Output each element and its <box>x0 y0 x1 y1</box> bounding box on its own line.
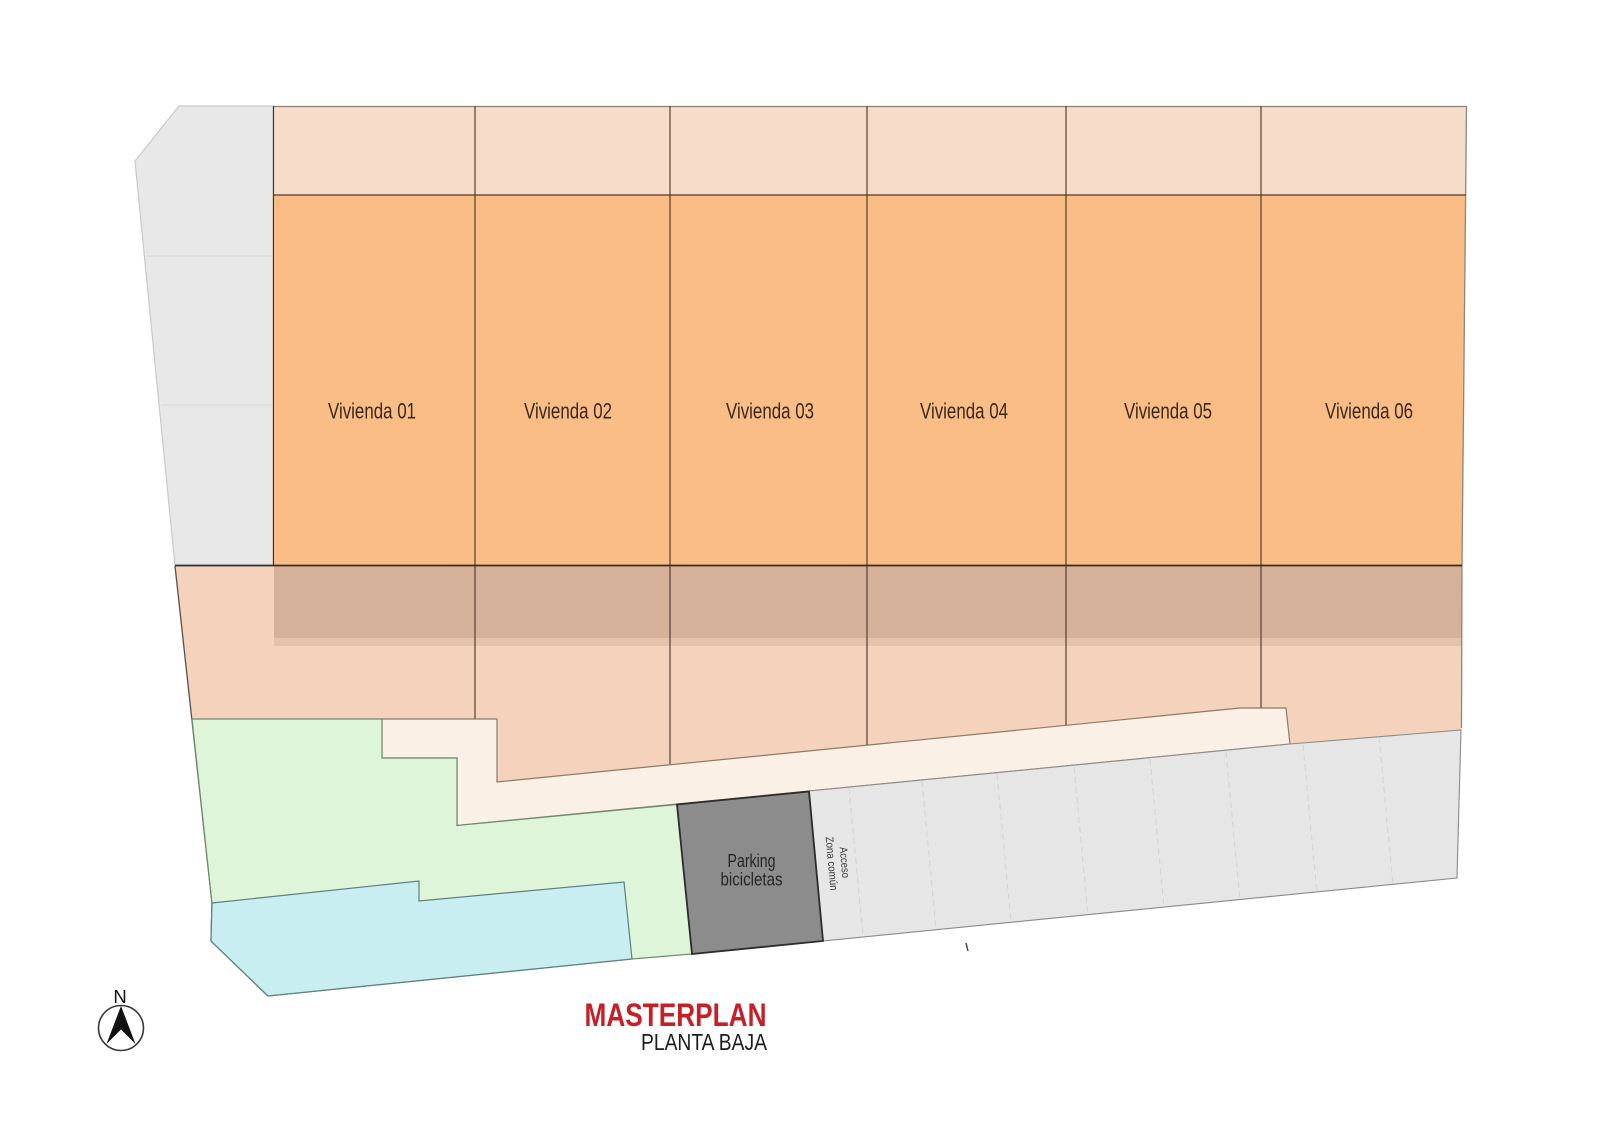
svg-text:Vivienda 01: Vivienda 01 <box>328 399 416 424</box>
svg-text:Vivienda 06: Vivienda 06 <box>1325 399 1413 424</box>
svg-text:MASTERPLAN: MASTERPLAN <box>585 997 767 1033</box>
svg-text:PLANTA BAJA: PLANTA BAJA <box>641 1029 767 1055</box>
svg-text:Vivienda 02: Vivienda 02 <box>524 399 612 424</box>
svg-text:bicicletas: bicicletas <box>721 870 783 890</box>
svg-text:Parking: Parking <box>728 851 776 871</box>
svg-text:Vivienda 05: Vivienda 05 <box>1124 399 1212 424</box>
svg-text:Vivienda 04: Vivienda 04 <box>920 399 1008 424</box>
svg-text:Vivienda 03: Vivienda 03 <box>726 399 814 424</box>
svg-text:N: N <box>113 986 126 1007</box>
